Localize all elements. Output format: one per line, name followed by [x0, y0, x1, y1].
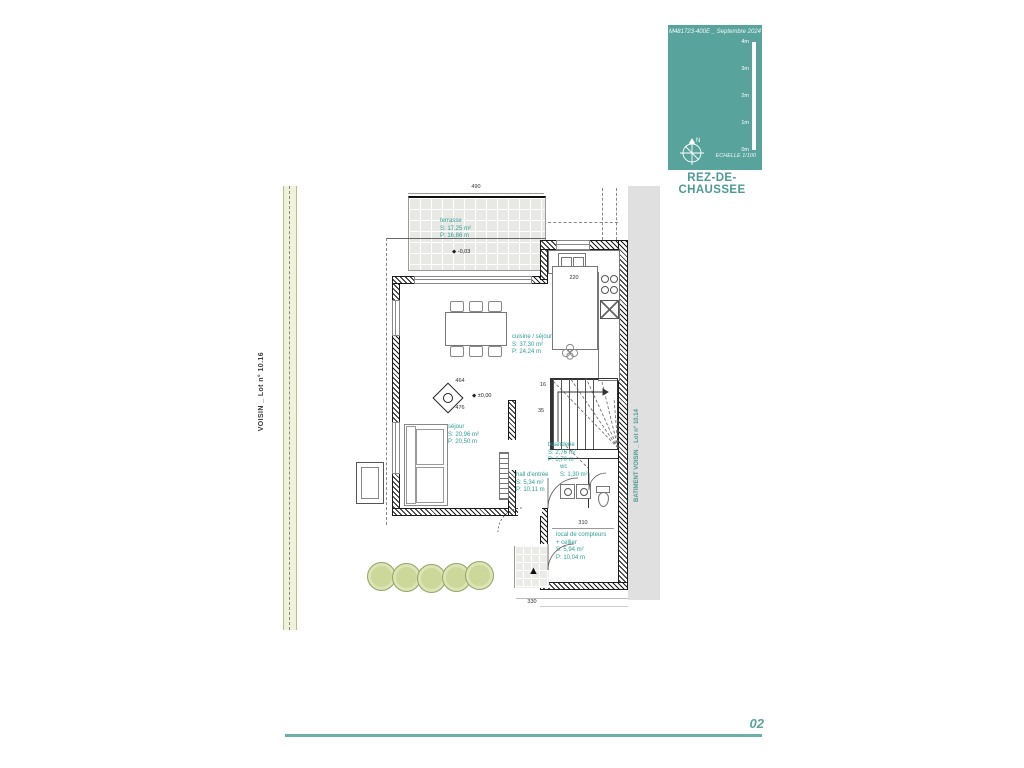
- room-label-sejour: séjour S: 20,96 m² P: 20,50 m: [448, 424, 504, 447]
- right-neighbor-line1: BATIMENT VOISIN _: [634, 444, 640, 502]
- drawing-title: REZ-DE-CHAUSSEE: [662, 172, 762, 196]
- room-name: cuisine / séjour: [512, 334, 576, 342]
- dim-line: [408, 193, 544, 194]
- level-diamond-icon: ◆: [472, 393, 476, 399]
- dim-living-b: 476: [430, 406, 490, 412]
- alignment-line: [386, 238, 546, 239]
- north-letter: N: [696, 138, 700, 144]
- room-label-local: local de compteurs + cellier S: 5,94 m² …: [556, 532, 616, 562]
- room-surface: S: 17,25 m²: [440, 226, 512, 234]
- chair: [469, 346, 483, 357]
- dining-table: [445, 312, 507, 346]
- room-surface: S: 5,34 m²: [516, 480, 556, 488]
- room-name: hall d'entrée: [516, 472, 556, 480]
- room-surface: S: 20,96 m²: [448, 432, 504, 440]
- sliding-door: [414, 276, 532, 284]
- scale-label: ECHELLE 1/100: [668, 153, 756, 159]
- dim-living-a: 464: [430, 379, 490, 385]
- room-name: terrasse: [440, 218, 512, 226]
- dim-line: [548, 222, 618, 223]
- level-value: -0,03: [458, 249, 471, 255]
- level-diamond-icon: ◆: [452, 249, 456, 255]
- sofa: [404, 424, 448, 506]
- dim-island: 220: [556, 276, 592, 282]
- room-label-wc: wc S: 1,30 m²: [560, 464, 594, 479]
- room-surface: S: 5,94 m²: [556, 547, 616, 555]
- level-marker-terrace: ◆ -0,03: [452, 250, 470, 256]
- plan-sheet: VOISIN _ Lot n° 10.16 BATIMENT VOISIN _ …: [0, 0, 1024, 768]
- property-line: [289, 186, 290, 630]
- chair: [450, 301, 464, 312]
- room-surface: S: 37,30 m²: [512, 342, 576, 350]
- room-label-hall: hall d'entrée S: 5,34 m² P: 10,11 m: [516, 472, 556, 495]
- room-perimeter: P: 10,11 m: [516, 487, 556, 495]
- tree-icon: [465, 561, 494, 590]
- room-perimeter: P: 24,24 m: [512, 349, 576, 357]
- room-name-2: + cellier: [556, 540, 616, 548]
- cooktop: [600, 274, 618, 296]
- washing-machine: [560, 484, 575, 499]
- room-name: buanderie: [548, 442, 598, 450]
- right-neighbor-line2: Lot n° 10.14: [634, 409, 640, 443]
- room-name: wc: [560, 464, 594, 472]
- wall-kitchen-left: [540, 248, 548, 280]
- scale-bar: [752, 42, 756, 150]
- dim-terrace-width: 490: [408, 185, 544, 191]
- room-label-buanderie: buanderie S: 2,76 m² P: 6,70 m: [548, 442, 598, 465]
- window: [392, 300, 400, 336]
- scale-tick: 2m: [734, 93, 749, 99]
- page-number: 02: [742, 716, 764, 731]
- duct-line: [616, 188, 617, 240]
- right-neighbor-label: BATIMENT VOISIN _ Lot n° 10.14: [633, 392, 641, 502]
- door-opening-hall: [508, 440, 516, 470]
- room-perimeter: P: 10,04 m: [556, 555, 616, 563]
- utility-box: [356, 462, 384, 504]
- entrance-arrow-icon: ▲: [528, 566, 539, 577]
- chair: [488, 346, 502, 357]
- dim-stair-count: 16: [540, 383, 546, 389]
- north-compass-icon: N: [676, 133, 708, 167]
- scale-tick: 1m: [734, 120, 749, 126]
- dim-stair-b: 35: [538, 409, 544, 415]
- setback-line: [386, 238, 387, 525]
- window: [556, 240, 590, 250]
- radiator: [499, 452, 509, 500]
- dim-entry: 330: [514, 600, 550, 606]
- footer-rule: [285, 734, 762, 737]
- chair: [488, 301, 502, 312]
- room-name: local de compteurs: [556, 532, 616, 540]
- dim-local-width: 310: [552, 521, 614, 527]
- wall-annex-bottom: [540, 582, 628, 590]
- staircase: [552, 378, 618, 450]
- dryer: [576, 484, 591, 499]
- level-marker-ground: ◆ ±0,00: [472, 394, 492, 400]
- title-block: M481723-400E _ Septembre 2024 4m 3m 2m 1…: [668, 25, 762, 170]
- drawing-reference: M481723-400E _ Septembre 2024: [668, 29, 762, 35]
- oven: [600, 300, 619, 319]
- scale-tick: 3m: [734, 66, 749, 72]
- road-strip: [283, 186, 297, 630]
- chair: [469, 301, 483, 312]
- room-perimeter: P: 16,86 m: [440, 233, 512, 241]
- room-label-cuisine-sejour: cuisine / séjour S: 37,30 m² P: 24,24 m: [512, 334, 576, 357]
- duct-line: [602, 188, 603, 240]
- scale-tick: 4m: [734, 39, 749, 45]
- room-perimeter: P: 20,50 m: [448, 439, 504, 447]
- door-opening-entrance: [518, 508, 542, 516]
- chair: [450, 346, 464, 357]
- room-surface: S: 2,76 m²: [548, 450, 598, 458]
- ground-line: [540, 606, 628, 607]
- left-neighbor-label: VOISIN _ Lot n° 10.16: [258, 352, 265, 431]
- window: [392, 422, 400, 474]
- dim-line: [552, 528, 614, 529]
- level-value: ±0,00: [478, 393, 492, 399]
- room-name: séjour: [448, 424, 504, 432]
- room-surface: S: 1,30 m²: [560, 472, 594, 480]
